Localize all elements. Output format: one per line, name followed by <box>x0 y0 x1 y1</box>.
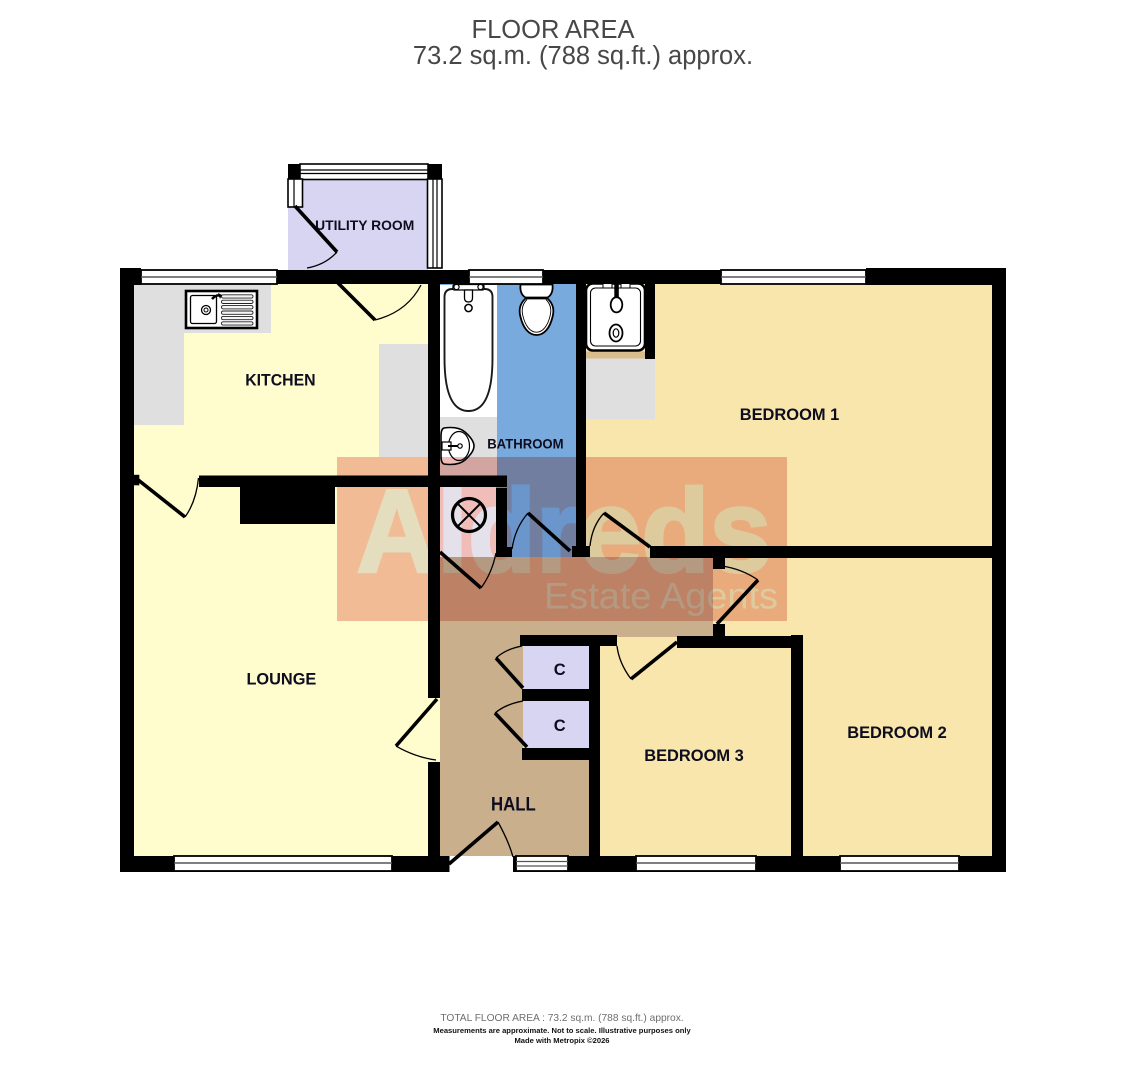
svg-text:BEDROOM 1: BEDROOM 1 <box>740 405 840 424</box>
svg-text:LOUNGE: LOUNGE <box>246 670 316 689</box>
svg-text:KITCHEN: KITCHEN <box>245 371 315 390</box>
svg-text:C: C <box>554 661 566 679</box>
svg-text:C: C <box>554 717 566 735</box>
svg-text:BEDROOM 2: BEDROOM 2 <box>847 723 947 742</box>
svg-text:TOTAL FLOOR AREA : 73.2 sq.m.: TOTAL FLOOR AREA : 73.2 sq.m. (788 sq.ft… <box>440 1013 683 1024</box>
svg-text:BATHROOM: BATHROOM <box>487 436 563 452</box>
svg-text:Measurements are approximate.: Measurements are approximate. Not to sca… <box>433 1026 691 1035</box>
svg-text:BEDROOM 3: BEDROOM 3 <box>644 746 744 765</box>
svg-text:FLOOR AREA: FLOOR AREA <box>472 16 635 44</box>
svg-text:HALL: HALL <box>491 795 536 816</box>
svg-text:UTILITY ROOM: UTILITY ROOM <box>315 217 414 233</box>
svg-text:Estate Agents: Estate Agents <box>544 575 778 617</box>
svg-text:Made with Metropix ©2026: Made with Metropix ©2026 <box>514 1036 609 1045</box>
svg-text:73.2 sq.m. (788 sq.ft.) approx: 73.2 sq.m. (788 sq.ft.) approx. <box>413 42 753 70</box>
